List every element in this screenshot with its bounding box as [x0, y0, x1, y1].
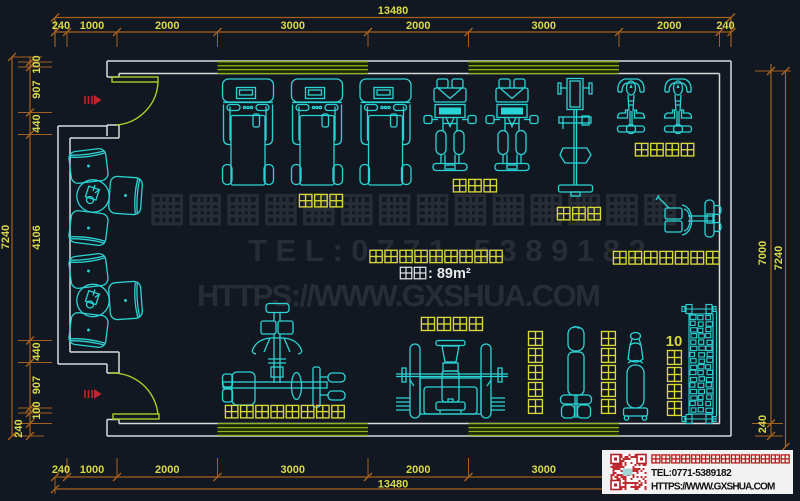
- svg-text:240: 240: [52, 464, 70, 476]
- svg-text:240: 240: [716, 20, 734, 32]
- svg-text:2000: 2000: [406, 464, 430, 476]
- svg-text:440: 440: [31, 114, 43, 132]
- svg-text:TEL:0771-5389182: TEL:0771-5389182: [651, 468, 732, 479]
- svg-text:13480: 13480: [378, 5, 409, 17]
- svg-text:907: 907: [31, 376, 43, 394]
- svg-text:7240: 7240: [773, 246, 785, 270]
- svg-text:1000: 1000: [80, 464, 104, 476]
- svg-text:HTTPS://WWW.GXSHUA.COM: HTTPS://WWW.GXSHUA.COM: [651, 482, 775, 493]
- svg-text:1000: 1000: [80, 20, 104, 32]
- svg-text:240: 240: [13, 419, 25, 437]
- svg-text:10: 10: [666, 333, 683, 350]
- svg-text:13480: 13480: [378, 479, 409, 491]
- svg-text:2000: 2000: [657, 20, 681, 32]
- svg-text:240: 240: [52, 20, 70, 32]
- svg-text:240: 240: [757, 415, 769, 433]
- svg-text:3000: 3000: [532, 20, 556, 32]
- svg-text:100: 100: [31, 401, 43, 419]
- svg-text:: 89m²: : 89m²: [428, 266, 471, 282]
- svg-text:HTTPS://WWW.GXSHUA.COM: HTTPS://WWW.GXSHUA.COM: [197, 278, 599, 313]
- svg-text:2000: 2000: [406, 20, 430, 32]
- svg-text:3000: 3000: [281, 464, 305, 476]
- svg-text:2000: 2000: [155, 20, 179, 32]
- svg-text:7240: 7240: [0, 225, 12, 249]
- svg-text:4106: 4106: [31, 225, 43, 249]
- svg-text:3000: 3000: [281, 20, 305, 32]
- svg-text:3000: 3000: [532, 464, 556, 476]
- svg-text:2000: 2000: [155, 464, 179, 476]
- svg-text:440: 440: [31, 342, 43, 360]
- svg-text:907: 907: [31, 80, 43, 98]
- svg-text:7000: 7000: [757, 241, 769, 265]
- svg-text:100: 100: [31, 55, 43, 73]
